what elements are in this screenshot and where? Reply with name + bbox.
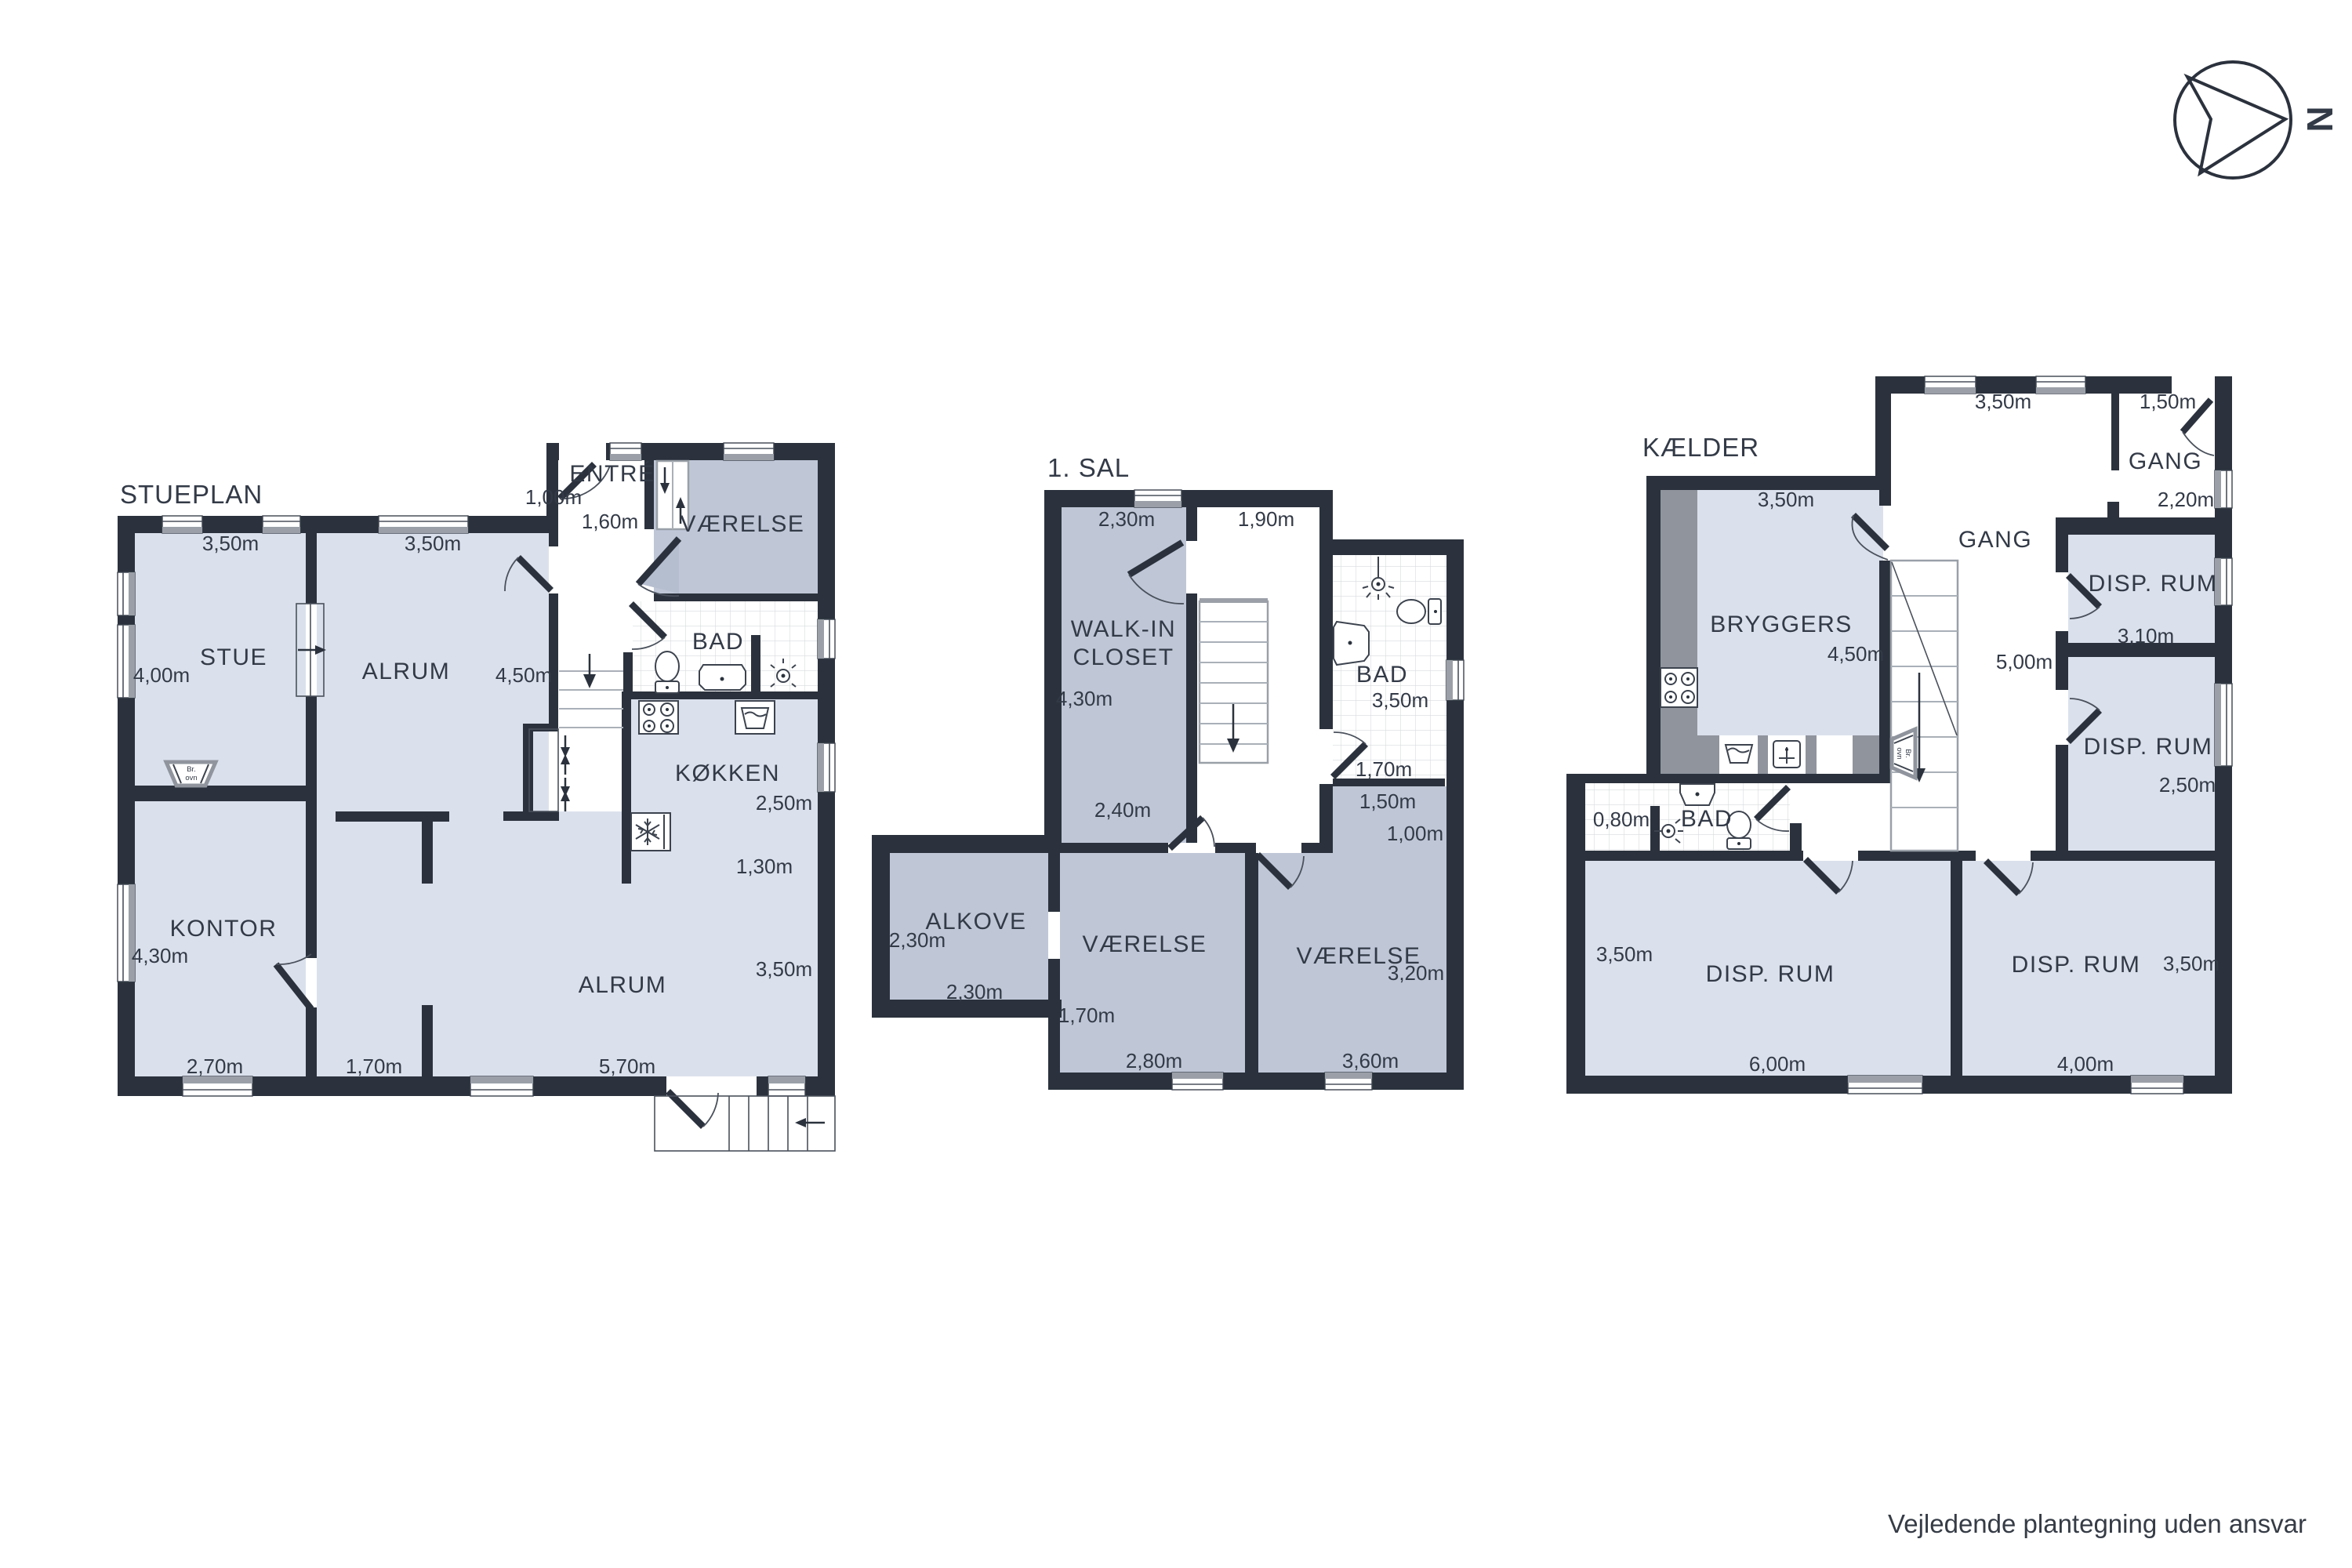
svg-text:ovn: ovn bbox=[185, 774, 197, 782]
measurement: 4,30m bbox=[132, 944, 188, 967]
measurement: 1,70m bbox=[346, 1054, 402, 1078]
room-label-gang-top: GANG bbox=[2129, 448, 2202, 474]
measurement: 1,90m bbox=[1238, 507, 1294, 531]
measurement: 2,30m bbox=[946, 980, 1003, 1004]
measurement: 1,60m bbox=[582, 510, 638, 533]
measurement: 5,00m bbox=[1996, 650, 2053, 673]
measurement: 1,70m bbox=[1058, 1004, 1115, 1027]
window bbox=[1134, 490, 1181, 507]
room-label-vaerelse: VÆRELSE bbox=[681, 511, 805, 537]
room-label-disp-bl: DISP. RUM bbox=[1706, 961, 1835, 987]
window bbox=[818, 619, 835, 659]
window bbox=[610, 443, 641, 460]
room-label-stue: STUE bbox=[200, 644, 267, 670]
svg-text:Br.: Br. bbox=[187, 765, 196, 774]
room-walkin-closet bbox=[1062, 507, 1186, 843]
room-label-bad: BAD bbox=[1681, 806, 1733, 832]
window bbox=[724, 443, 774, 460]
window bbox=[1325, 1073, 1372, 1090]
measurement: 3,50m bbox=[756, 957, 812, 981]
measurement: 1,70m bbox=[1356, 757, 1412, 781]
plan-title-stueplan: STUEPLAN bbox=[120, 480, 263, 509]
measurement: 1,30m bbox=[736, 855, 793, 878]
measurement: 2,30m bbox=[889, 928, 946, 952]
measurement: 3,50m bbox=[1975, 390, 2031, 413]
window bbox=[2131, 1076, 2183, 1094]
measurement: 2,70m bbox=[187, 1054, 243, 1078]
measurement: 4,50m bbox=[495, 663, 552, 687]
measurement: 2,20m bbox=[2158, 488, 2214, 511]
window bbox=[162, 516, 202, 533]
room-label-vaerelse1: VÆRELSE bbox=[1083, 931, 1207, 957]
window bbox=[1446, 660, 1464, 700]
measurement: 1,00m bbox=[1387, 822, 1443, 845]
staircase bbox=[1891, 561, 1958, 851]
door-swing bbox=[666, 1076, 757, 1127]
window bbox=[118, 625, 135, 698]
measurement: 4,30m bbox=[1056, 687, 1112, 710]
bath-sink-icon bbox=[1680, 784, 1715, 805]
floor-plan-sheet: STUEPLAN bbox=[0, 0, 2352, 1568]
window bbox=[768, 1076, 805, 1096]
measurement: 6,00m bbox=[1749, 1052, 1806, 1076]
measurement: 4,00m bbox=[2057, 1052, 2114, 1076]
kitchen-sink-icon bbox=[735, 701, 775, 734]
floor-plan-kaelder: KÆLDER bbox=[1566, 376, 2232, 1094]
measurement: 3,60m bbox=[1342, 1049, 1399, 1073]
disclaimer-text: Vejledende plantegning uden ansvar bbox=[1888, 1509, 2307, 1538]
room-alrum bbox=[317, 811, 818, 1076]
measurement: 3,50m bbox=[405, 532, 461, 555]
fridge-icon bbox=[631, 813, 670, 851]
room-label-alrum-top: ALRUM bbox=[362, 659, 451, 684]
room-label-disp-br: DISP. RUM bbox=[2012, 952, 2141, 978]
window bbox=[818, 743, 835, 792]
room-label-kontor: KONTOR bbox=[170, 916, 278, 942]
svg-text:ovn: ovn bbox=[1895, 747, 1904, 759]
bath-sink-icon bbox=[699, 665, 746, 690]
measurement: 2,40m bbox=[1094, 798, 1151, 822]
window bbox=[118, 572, 135, 615]
window bbox=[1848, 1076, 1922, 1094]
measurement: 3,50m bbox=[1758, 488, 1814, 511]
window bbox=[263, 516, 300, 533]
measurement: 0,80m bbox=[1593, 808, 1650, 831]
floor-plan-1-sal: 1. SAL bbox=[872, 453, 1464, 1090]
window bbox=[2215, 470, 2232, 508]
room-label-koekken: KØKKEN bbox=[675, 760, 780, 786]
door-swing bbox=[2172, 376, 2215, 456]
measurement: 2,50m bbox=[2159, 773, 2216, 797]
room-label-bad: BAD bbox=[1356, 662, 1408, 688]
svg-text:Br.: Br. bbox=[1904, 749, 1912, 758]
measurement: 3,50m bbox=[1372, 688, 1428, 712]
measurement: 4,50m bbox=[1828, 642, 1884, 666]
room-label-disp-mr: DISP. RUM bbox=[2084, 734, 2213, 760]
room-label-bryggers: BRYGGERS bbox=[1710, 612, 1853, 637]
staircase bbox=[1200, 598, 1268, 763]
room-label-entre: ENTRÉ bbox=[569, 461, 655, 487]
measurement: 3,50m bbox=[2163, 952, 2220, 975]
measurement: 3,50m bbox=[1596, 942, 1653, 966]
compass-north-label: N bbox=[2299, 106, 2340, 132]
stove-icon bbox=[639, 701, 678, 734]
wood-stove-icon: Br. ovn bbox=[166, 762, 216, 786]
measurement: 1,00m bbox=[525, 485, 582, 509]
window bbox=[1172, 1073, 1223, 1090]
floor-plan-stueplan: STUEPLAN bbox=[118, 443, 835, 1151]
window bbox=[2215, 684, 2232, 766]
measurement: 3,20m bbox=[1388, 961, 1444, 985]
window bbox=[470, 1076, 533, 1096]
stove-icon bbox=[1661, 668, 1697, 707]
measurement: 2,30m bbox=[1098, 507, 1155, 531]
bath-sink-icon bbox=[1334, 622, 1369, 665]
compass-icon: N bbox=[2175, 62, 2340, 178]
measurement: 3,10m bbox=[2118, 624, 2174, 648]
plan-title-sal: 1. SAL bbox=[1047, 453, 1130, 482]
room-label-bad: BAD bbox=[692, 629, 744, 655]
room-vaerelse1 bbox=[1060, 853, 1245, 1073]
measurement: 1,50m bbox=[1359, 789, 1416, 813]
plan-title-kaelder: KÆLDER bbox=[1642, 433, 1759, 462]
toilet-icon bbox=[655, 652, 679, 693]
measurement: 5,70m bbox=[599, 1054, 655, 1078]
window bbox=[183, 1076, 252, 1096]
window bbox=[379, 516, 468, 533]
measurement: 1,50m bbox=[2140, 390, 2196, 413]
window bbox=[1925, 376, 1976, 394]
room-label-alrum: ALRUM bbox=[579, 972, 667, 998]
room-label-gang: GANG bbox=[1958, 527, 2032, 553]
room-label-walkin-1: WALK-IN bbox=[1071, 616, 1176, 642]
measurement: 2,50m bbox=[756, 791, 812, 815]
toilet-icon bbox=[1397, 599, 1441, 624]
measurement: 4,00m bbox=[133, 663, 190, 687]
measurement: 3,50m bbox=[202, 532, 259, 555]
measurement: 2,80m bbox=[1126, 1049, 1182, 1073]
room-label-disp-tr: DISP. RUM bbox=[2089, 571, 2218, 597]
room-label-walkin-2: CLOSET bbox=[1073, 644, 1174, 670]
wood-stove-icon: Br. ovn bbox=[1892, 729, 1915, 778]
window bbox=[2036, 376, 2085, 394]
